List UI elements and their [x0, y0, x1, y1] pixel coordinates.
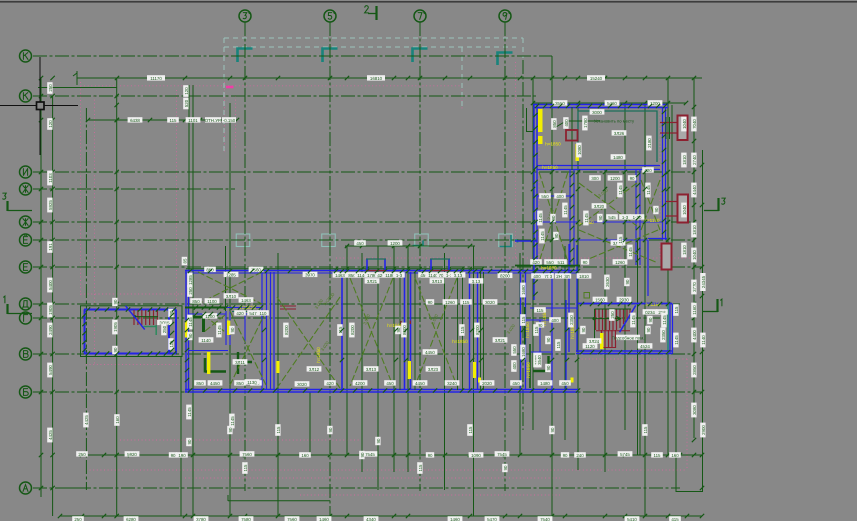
svg-text:1145: 1145: [538, 213, 543, 223]
svg-text:1145: 1145: [628, 247, 633, 257]
svg-text:1810: 1810: [682, 245, 687, 255]
svg-text:1463: 1463: [241, 298, 251, 303]
svg-text:250: 250: [610, 311, 615, 319]
svg-text:1480: 1480: [613, 155, 623, 160]
svg-text:90: 90: [646, 327, 651, 332]
svg-text:850: 850: [552, 120, 557, 128]
svg-text:420: 420: [532, 260, 540, 265]
svg-text:3Л10: 3Л10: [226, 294, 237, 299]
svg-text:7040: 7040: [692, 119, 697, 129]
svg-text:90: 90: [360, 452, 365, 457]
svg-text:24345: 24345: [701, 275, 706, 288]
svg-text:115: 115: [556, 341, 561, 349]
svg-text:90: 90: [188, 333, 193, 338]
svg-text:3.13: 3.13: [454, 273, 463, 278]
svg-text:115: 115: [654, 453, 662, 458]
svg-text:1100: 1100: [207, 299, 217, 304]
svg-text:1680: 1680: [521, 285, 526, 295]
svg-text:115: 115: [170, 118, 178, 123]
svg-text:1145: 1145: [662, 315, 667, 325]
svg-text:1285: 1285: [188, 275, 193, 285]
svg-text:1145: 1145: [618, 185, 623, 195]
svg-text:1160: 1160: [692, 305, 697, 315]
svg-text:3970: 3970: [305, 272, 315, 277]
svg-text:250: 250: [74, 517, 82, 521]
svg-text:5745: 5745: [620, 452, 630, 457]
svg-text:2020: 2020: [482, 381, 492, 386]
svg-text:90: 90: [503, 465, 508, 470]
svg-text:4200: 4200: [355, 381, 365, 386]
svg-text:115: 115: [643, 426, 648, 434]
svg-text:1145: 1145: [230, 416, 235, 426]
svg-text:h=1850: h=1850: [542, 165, 558, 170]
svg-text:3Л12: 3Л12: [309, 367, 320, 372]
svg-text:90: 90: [551, 215, 556, 220]
svg-text:2490: 2490: [48, 325, 53, 335]
svg-text:1145: 1145: [187, 407, 192, 417]
svg-text:160: 160: [301, 453, 309, 458]
svg-text:5470: 5470: [487, 517, 497, 521]
svg-text:3Л21: 3Л21: [495, 338, 506, 343]
svg-text:4440: 4440: [692, 185, 697, 195]
svg-text:90: 90: [563, 453, 568, 458]
svg-text:1463: 1463: [335, 273, 345, 278]
svg-text:2850: 2850: [692, 365, 697, 375]
svg-text:7540: 7540: [540, 517, 550, 521]
svg-text:90: 90: [328, 427, 333, 432]
svg-text:545: 545: [608, 215, 616, 220]
svg-text:191: 191: [48, 243, 53, 251]
svg-text:90: 90: [546, 365, 551, 370]
svg-text:15240: 15240: [590, 76, 603, 81]
svg-text:5920: 5920: [127, 452, 137, 457]
svg-text:8200: 8200: [350, 325, 355, 335]
svg-text:8200: 8200: [284, 325, 289, 335]
svg-text:90: 90: [428, 300, 433, 305]
svg-text:1145: 1145: [584, 213, 589, 223]
svg-text:1130: 1130: [247, 380, 257, 385]
svg-text:h=1850: h=1850: [452, 339, 468, 344]
svg-text:1-3: 1-3: [396, 273, 403, 278]
svg-text:90: 90: [654, 207, 659, 212]
svg-text:400: 400: [533, 274, 541, 279]
svg-text:1140: 1140: [201, 338, 211, 343]
svg-text:6438: 6438: [130, 118, 140, 123]
svg-text:1905: 1905: [113, 322, 118, 332]
svg-text:1040: 1040: [692, 250, 697, 260]
svg-text:5400: 5400: [48, 280, 53, 290]
svg-text:5460: 5460: [607, 101, 617, 106]
svg-text:160: 160: [115, 416, 120, 424]
svg-text:2H: 2H: [556, 274, 562, 279]
svg-text:420: 420: [326, 381, 334, 386]
svg-text:550: 550: [512, 346, 517, 354]
svg-text:7545: 7545: [497, 452, 507, 457]
svg-text:850: 850: [192, 299, 200, 304]
svg-text:115: 115: [468, 426, 473, 434]
svg-text:250: 250: [48, 84, 53, 92]
svg-text:70: 70: [439, 273, 444, 278]
svg-text:450: 450: [386, 381, 394, 386]
svg-text:420: 420: [236, 311, 244, 316]
svg-text:4425: 4425: [48, 430, 53, 440]
svg-text:h=1850: h=1850: [541, 266, 557, 271]
svg-text:400: 400: [551, 318, 559, 323]
svg-text:5490: 5490: [48, 365, 53, 375]
svg-text:120: 120: [48, 120, 53, 128]
svg-text:1200: 1200: [390, 241, 400, 246]
svg-text:1103: 1103: [48, 173, 53, 183]
svg-text:7560: 7560: [242, 452, 252, 457]
svg-text:90: 90: [583, 260, 588, 265]
svg-text:1090: 1090: [471, 453, 481, 458]
svg-text:Подсобное пом.: Подсобное пом.: [612, 335, 645, 340]
svg-text:190: 190: [178, 453, 186, 458]
svg-text:1810: 1810: [579, 274, 589, 279]
svg-text:3Л: 3Л: [564, 274, 569, 279]
svg-text:115: 115: [534, 326, 539, 334]
svg-text:250: 250: [78, 452, 86, 457]
svg-text:2180: 2180: [647, 138, 652, 148]
svg-text:1080: 1080: [577, 145, 582, 155]
svg-text:85: 85: [182, 258, 187, 263]
svg-text:400: 400: [556, 194, 564, 199]
svg-text:1040: 1040: [682, 119, 687, 129]
svg-text:550: 550: [546, 260, 554, 265]
svg-text:3780: 3780: [196, 517, 206, 521]
svg-text:11170: 11170: [150, 76, 162, 81]
svg-text:1905: 1905: [48, 305, 53, 315]
svg-text:3Л13: 3Л13: [432, 279, 443, 284]
svg-text:1200: 1200: [610, 176, 620, 181]
svg-text:415: 415: [671, 517, 679, 521]
svg-text:1145: 1145: [674, 335, 679, 345]
svg-text:120: 120: [184, 87, 189, 95]
svg-text:250: 250: [162, 325, 167, 333]
svg-text:4450: 4450: [415, 381, 425, 386]
svg-text:7560: 7560: [287, 517, 297, 521]
svg-text:1680: 1680: [521, 347, 526, 357]
svg-text:115: 115: [674, 306, 679, 314]
svg-text:90: 90: [546, 337, 551, 342]
svg-text:90: 90: [376, 438, 381, 443]
svg-text:1480: 1480: [540, 381, 550, 386]
svg-text:2930: 2930: [619, 297, 629, 302]
svg-text:90: 90: [648, 317, 653, 322]
svg-text:16810: 16810: [370, 76, 383, 81]
svg-text:1145: 1145: [631, 315, 636, 325]
svg-text:3.13: 3.13: [472, 279, 481, 284]
svg-text:3Л13: 3Л13: [366, 367, 377, 372]
svg-text:4425: 4425: [84, 415, 89, 425]
svg-text:450: 450: [356, 241, 364, 246]
svg-text:450: 450: [561, 381, 569, 386]
svg-text:1810: 1810: [692, 225, 697, 235]
svg-text:1260: 1260: [615, 260, 625, 265]
svg-text:850: 850: [236, 381, 244, 386]
svg-text:110: 110: [260, 311, 268, 316]
svg-text:250: 250: [188, 287, 193, 295]
svg-text:1460: 1460: [319, 517, 329, 521]
svg-text:3Л11: 3Л11: [235, 360, 245, 365]
svg-text:3020: 3020: [297, 382, 307, 387]
svg-text:2350: 2350: [569, 315, 574, 325]
svg-text:2900: 2900: [701, 425, 706, 435]
svg-text:5410: 5410: [627, 517, 637, 521]
svg-text:400: 400: [564, 119, 569, 127]
svg-text:450: 450: [512, 381, 520, 386]
svg-text:1145: 1145: [540, 231, 545, 241]
svg-text:3000: 3000: [592, 110, 602, 115]
svg-text:2740: 2740: [692, 155, 697, 165]
svg-text:3Л23: 3Л23: [428, 367, 439, 372]
svg-text:90: 90: [581, 327, 586, 332]
svg-text:4524: 4524: [640, 344, 650, 349]
svg-text:90: 90: [187, 439, 192, 444]
svg-text:115: 115: [276, 426, 281, 434]
svg-text:1145: 1145: [217, 325, 222, 335]
svg-text:511: 511: [558, 260, 566, 265]
svg-text:4450: 4450: [425, 350, 435, 355]
svg-text:115: 115: [460, 326, 465, 334]
svg-text:1810: 1810: [682, 155, 687, 165]
svg-text:1460: 1460: [450, 517, 460, 521]
svg-text:Установить по месту: Установить по месту: [594, 119, 635, 124]
svg-text:90: 90: [598, 215, 603, 220]
svg-text:1780: 1780: [583, 118, 588, 128]
svg-text:1-3: 1-3: [622, 215, 629, 220]
svg-text:90: 90: [230, 327, 235, 332]
svg-text:1101: 1101: [188, 118, 198, 123]
svg-text:4450: 4450: [210, 381, 220, 386]
svg-text:115: 115: [243, 464, 248, 472]
svg-text:115: 115: [618, 236, 623, 244]
svg-text:1140: 1140: [428, 273, 438, 278]
svg-text:115: 115: [418, 464, 423, 472]
svg-text:90: 90: [228, 427, 233, 432]
svg-text:6280: 6280: [126, 517, 136, 521]
svg-text:h=1150: h=1150: [645, 302, 661, 307]
svg-text:1560: 1560: [595, 297, 605, 302]
svg-text:850: 850: [206, 267, 214, 272]
svg-text:115: 115: [463, 300, 471, 305]
svg-text:3020: 3020: [485, 300, 495, 305]
svg-text:90: 90: [554, 233, 559, 238]
svg-text:3770: 3770: [692, 282, 697, 292]
svg-text:2630: 2630: [605, 277, 610, 287]
svg-text:115: 115: [521, 316, 526, 324]
svg-text:3Л26: 3Л26: [614, 131, 625, 136]
svg-text:-0.150: -0.150: [223, 118, 236, 123]
svg-text:550: 550: [541, 194, 549, 199]
svg-text:7580: 7580: [241, 517, 251, 521]
svg-text:300: 300: [591, 176, 599, 181]
svg-text:8200: 8200: [475, 325, 480, 335]
svg-text:4400: 4400: [692, 330, 697, 340]
svg-text:160: 160: [671, 453, 679, 458]
svg-text:3Л21: 3Л21: [367, 279, 378, 284]
svg-text:h=1850: h=1850: [545, 142, 561, 147]
svg-text:115: 115: [537, 308, 545, 313]
svg-text:90: 90: [428, 453, 433, 458]
svg-text:5925: 5925: [48, 200, 53, 210]
svg-text:90: 90: [113, 347, 118, 352]
svg-text:7545: 7545: [365, 452, 375, 457]
svg-text:2350: 2350: [661, 330, 666, 340]
svg-text:1145: 1145: [646, 185, 651, 195]
svg-text:3540: 3540: [537, 355, 542, 365]
svg-text:90: 90: [630, 176, 635, 181]
svg-text:1260: 1260: [445, 300, 455, 305]
svg-text:1120: 1120: [585, 344, 595, 349]
svg-text:90: 90: [625, 279, 630, 284]
svg-text:8200: 8200: [500, 273, 510, 278]
svg-text:1145: 1145: [563, 205, 568, 215]
svg-text:547: 547: [249, 311, 257, 316]
svg-text:90: 90: [171, 453, 176, 458]
svg-text:1140: 1140: [701, 335, 706, 345]
svg-text:ОТН.УР.: ОТН.УР.: [205, 118, 222, 123]
svg-text:4340: 4340: [366, 517, 376, 521]
svg-text:400: 400: [512, 362, 517, 370]
svg-text:3240: 3240: [447, 381, 457, 386]
svg-text:90: 90: [113, 299, 118, 304]
svg-text:520: 520: [184, 99, 189, 107]
svg-text:850: 850: [196, 381, 204, 386]
svg-text:0234: 0234: [645, 310, 655, 315]
svg-text:3080: 3080: [692, 405, 697, 415]
svg-text:1040: 1040: [682, 205, 687, 215]
svg-text:90: 90: [550, 427, 555, 432]
svg-text:h=1850: h=1850: [526, 362, 531, 378]
svg-text:240: 240: [576, 453, 584, 458]
svg-text:3Л20: 3Л20: [594, 204, 605, 209]
